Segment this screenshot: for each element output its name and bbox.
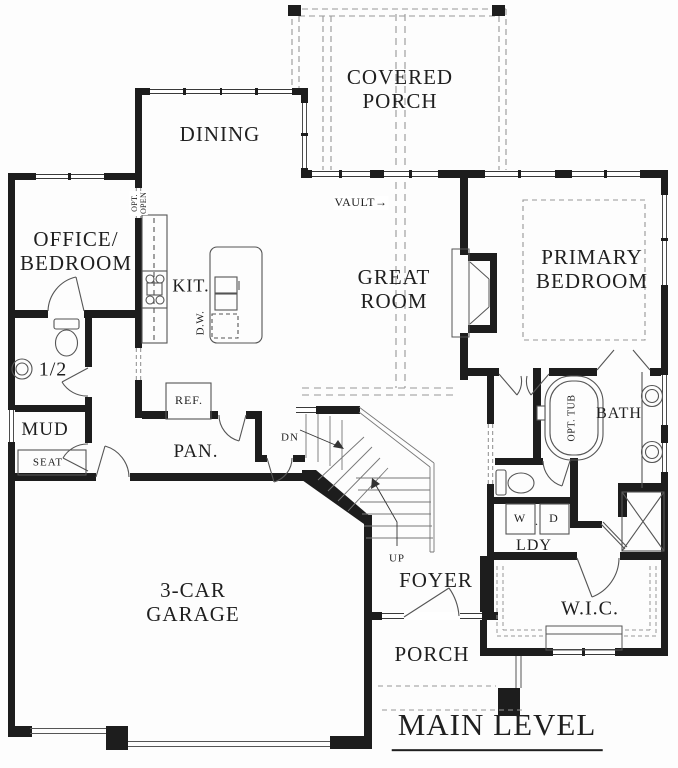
room-label-laundry: LDY [516,537,552,555]
room-label-wic: W.I.C. [561,598,619,621]
room-label-porch: PORCH [394,642,469,666]
half-bath-fixtures [12,319,86,475]
plan-title: MAIN LEVEL [392,707,603,751]
room-label-mud: MUD [21,419,68,441]
label-dishwasher: D.W. [195,311,208,336]
floor-plan-canvas: COVERED PORCH DINING OFFICE/ BEDROOM KIT… [0,0,678,768]
label-refrigerator: REF. [175,394,203,408]
label-stairs-up: UP [389,553,405,566]
label-dryer: D [549,512,559,526]
label-seat: SEAT [33,457,63,470]
cased-openings [136,188,492,484]
label-washer: W [514,512,526,526]
room-label-pantry: PAN. [173,441,218,463]
sink-icon [215,277,237,293]
window-seat [546,626,622,650]
fireplace-icon [452,249,489,337]
shower-icon [622,492,664,551]
room-label-great-room: GREAT ROOM [358,265,431,313]
room-label-kitchen: KIT. [172,276,209,297]
wc-toilet-tank [496,470,506,495]
label-stairs-down: DN [281,432,299,445]
room-label-primary-bedroom: PRIMARY BEDROOM [536,245,648,293]
garage-doors [30,729,330,747]
label-optional-tub: OPT. TUB [566,395,578,442]
label-wd-dot: . [535,515,539,529]
wc-toilet-icon [508,473,534,493]
room-label-covered-porch: COVERED PORCH [347,65,453,113]
floor-plan-svg [0,0,678,768]
toilet-icon [56,330,78,356]
room-label-garage: 3-CAR GARAGE [146,578,240,626]
tub-faucet-icon [537,406,545,420]
label-vault: VAULT→ [333,196,388,210]
room-label-foyer: FOYER [399,568,473,592]
dishwasher-outline [212,314,238,338]
bath-sink-icon-2 [642,442,663,463]
bath-sink-icon [642,386,663,407]
room-label-dining: DINING [180,122,261,146]
kitchen-island [210,247,262,343]
room-label-bath: BATH [596,405,642,423]
label-optional-opening: OPT. OPEN [130,191,148,215]
room-label-office-bedroom: OFFICE/ BEDROOM [20,227,132,275]
room-label-half-bath: 1/2 [39,359,68,382]
toilet-tank-icon [54,319,79,329]
